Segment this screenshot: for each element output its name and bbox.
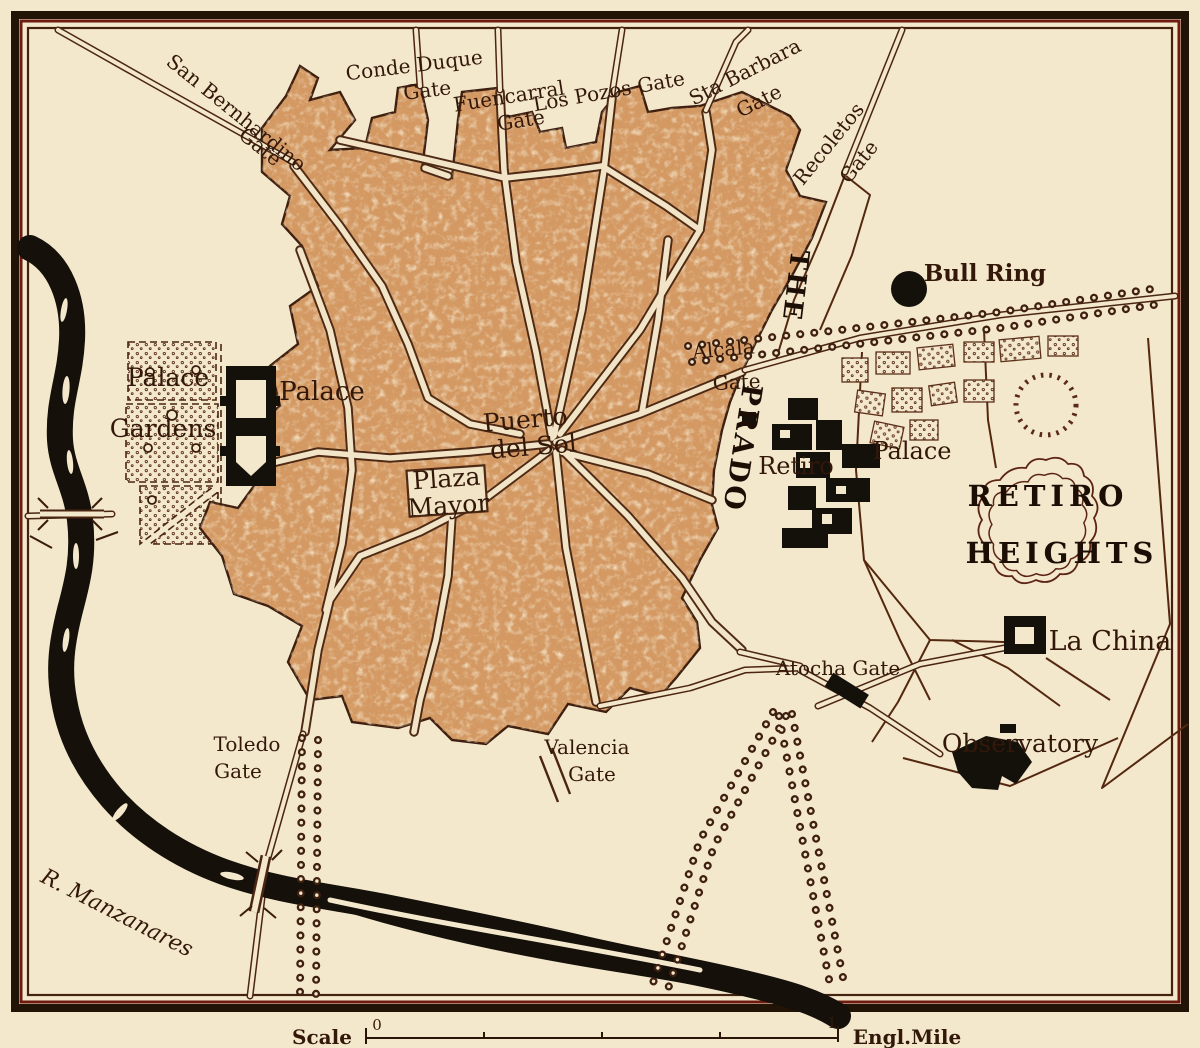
palace-gardens-label: Palace xyxy=(127,363,209,392)
observatory-label: Observatory xyxy=(942,729,1099,758)
retiro-heights-label: RETIRO xyxy=(968,479,1129,513)
bull-ring-building xyxy=(891,271,927,307)
madrid-map: Conde Duque Gate Fuencarral Gate Los Poz… xyxy=(0,0,1200,1048)
royal-palace-building xyxy=(220,366,280,486)
scale-zero: 0 xyxy=(372,1016,382,1034)
plaza-mayor-label-2: Mayor xyxy=(407,488,491,523)
scale-unit-label: Engl.Mile xyxy=(853,1025,961,1048)
valencia-gate-label-2: Gate xyxy=(568,762,616,786)
palace-label: Palace xyxy=(279,377,365,407)
la-china-building xyxy=(1004,616,1046,654)
atocha-gate-label: Atocha Gate xyxy=(775,656,900,680)
scale-one: 1 xyxy=(827,1014,837,1032)
madrid-map-page: Conde Duque Gate Fuencarral Gate Los Poz… xyxy=(0,0,1200,1048)
bull-ring-label: Bull Ring xyxy=(924,260,1046,287)
scale-label: Scale xyxy=(292,1025,352,1048)
palace-gardens-label-2: Gardens xyxy=(110,414,217,443)
toledo-gate-label-2: Gate xyxy=(214,759,262,783)
valencia-gate-label: Valencia xyxy=(543,735,629,759)
retiro-palace-label-2: Palace xyxy=(872,437,951,465)
toledo-gate-label: Toledo xyxy=(214,732,281,756)
la-china-label: La China xyxy=(1049,626,1172,657)
retiro-palace-label: Retiro xyxy=(758,452,834,480)
retiro-heights-label-2: HEIGHTS xyxy=(966,536,1159,570)
